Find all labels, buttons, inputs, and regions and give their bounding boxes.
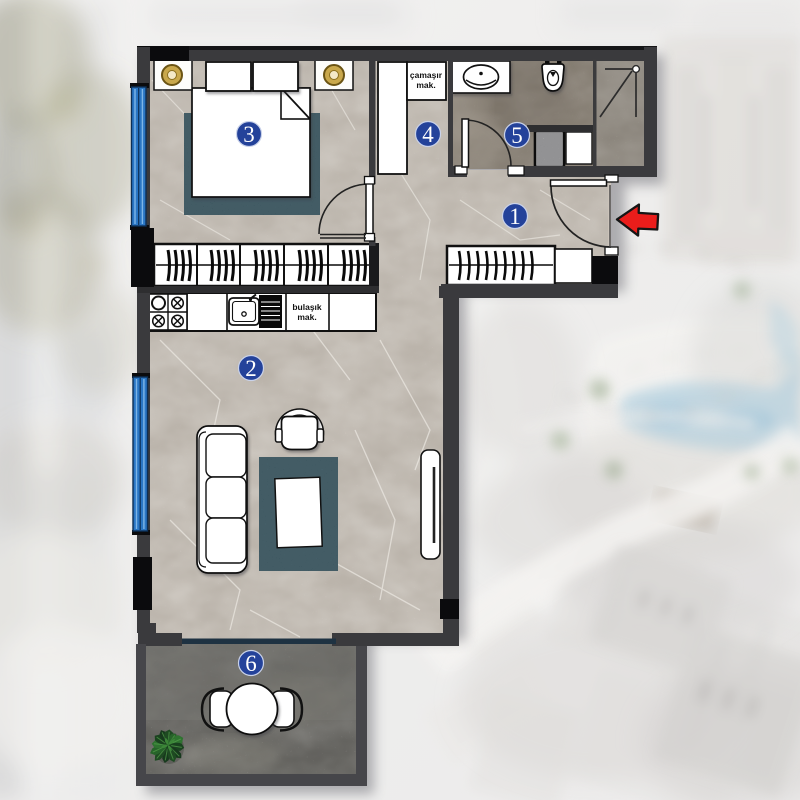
svg-text:3: 3 <box>243 122 255 147</box>
svg-text:mak.: mak. <box>297 312 316 322</box>
svg-text:6: 6 <box>245 651 257 676</box>
svg-text:1: 1 <box>509 204 521 229</box>
svg-text:2: 2 <box>245 356 257 381</box>
svg-text:mak.: mak. <box>416 80 435 90</box>
svg-text:çamaşır: çamaşır <box>410 70 443 80</box>
svg-text:bulaşık: bulaşık <box>292 302 322 312</box>
svg-text:4: 4 <box>422 122 434 147</box>
svg-text:5: 5 <box>511 123 523 148</box>
